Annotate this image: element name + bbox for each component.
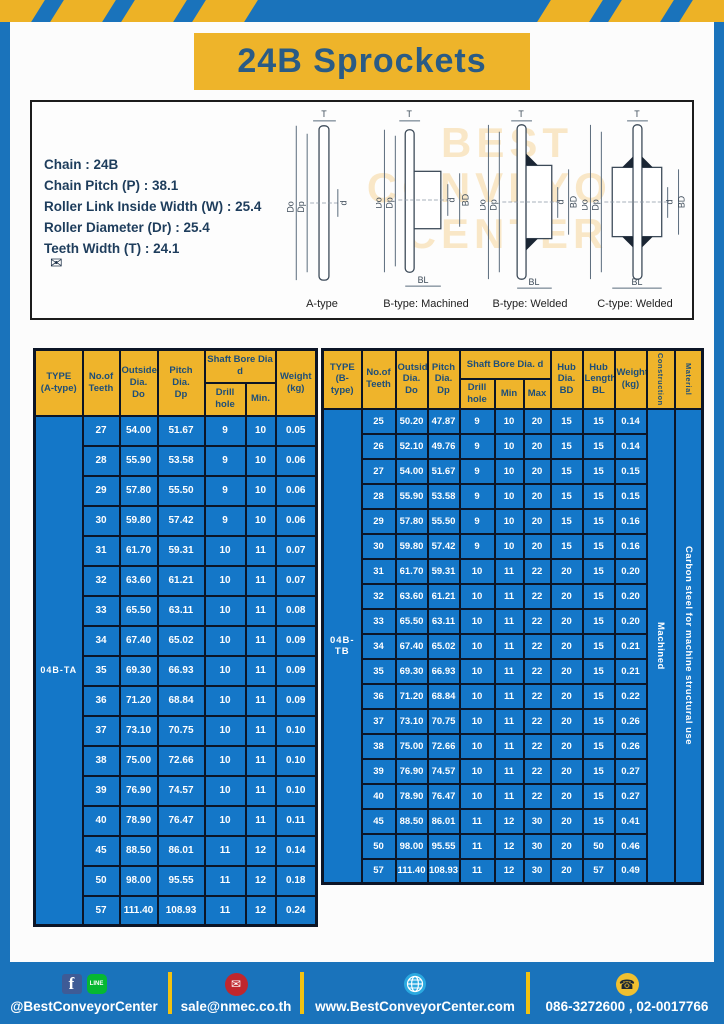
svg-text:Dp: Dp [384, 197, 394, 208]
cell: 15 [583, 609, 615, 634]
cell: 22 [524, 734, 551, 759]
cell: 65.02 [158, 626, 205, 656]
col-header-outside-dia: Outside Dia. Do [120, 350, 158, 416]
cell: 9 [460, 534, 495, 559]
cell: 0.26 [615, 734, 647, 759]
cell: 57 [583, 859, 615, 884]
col-header-pitch-dia: Pitch Dia. Dp [428, 350, 460, 409]
cell: 98.00 [120, 866, 158, 896]
cell: 34 [83, 626, 120, 656]
cell: 12 [246, 896, 276, 926]
cell: 0.16 [615, 534, 647, 559]
cell: 30 [524, 834, 551, 859]
cell: 9 [205, 416, 246, 446]
cell: 20 [551, 759, 583, 784]
cell: 63.11 [158, 596, 205, 626]
cell: 9 [205, 506, 246, 536]
spec-chain: Chain : 24B [44, 154, 261, 175]
cell: 20 [551, 609, 583, 634]
footer-phone: ☎ 086-3272600 , 02-0017766 [530, 973, 724, 1014]
c-type-welded-diagram: T Do Dp d BD [582, 108, 688, 296]
table-b-body: 04B-TB2550.2047.879102015150.14MachinedC… [323, 409, 703, 884]
cell: 12 [495, 859, 524, 884]
col-header-type-b: TYPE (B-type) [323, 350, 362, 409]
chain-specs: Chain : 24B Chain Pitch (P) : 38.1 Rolle… [44, 154, 261, 259]
cell: 33 [362, 609, 396, 634]
table-row: 3773.1070.7510112220150.26 [323, 709, 703, 734]
spec-roller-width: Roller Link Inside Width (W) : 25.4 [44, 196, 261, 217]
cell: 88.50 [120, 836, 158, 866]
cell: 11 [246, 776, 276, 806]
cell: 10 [495, 509, 524, 534]
phone-icon: ☎ [616, 973, 639, 996]
cell: 59.31 [158, 536, 205, 566]
cell: 12 [246, 836, 276, 866]
cell: 12 [495, 809, 524, 834]
cell: 57.80 [396, 509, 428, 534]
svg-text:Do: Do [286, 201, 295, 212]
cell: 74.57 [428, 759, 460, 784]
col-header-weight: Weight (kg) [615, 350, 647, 409]
cell: 0.20 [615, 559, 647, 584]
cell: 55.90 [120, 446, 158, 476]
footer-website: www.BestConveyorCenter.com [304, 972, 526, 1014]
cell: 11 [460, 809, 495, 834]
cell: 10 [495, 459, 524, 484]
cell: 22 [524, 609, 551, 634]
cell: 20 [551, 809, 583, 834]
cell: 11 [246, 536, 276, 566]
cell: 54.00 [120, 416, 158, 446]
cell: 74.57 [158, 776, 205, 806]
cell: 10 [495, 409, 524, 434]
cell: 22 [524, 759, 551, 784]
spec-roller-dia: Roller Diameter (Dr) : 25.4 [44, 217, 261, 238]
cell: 10 [205, 626, 246, 656]
svg-text:BL: BL [632, 277, 643, 287]
cell: 50.20 [396, 409, 428, 434]
table-row: 2855.9053.589102015150.15 [323, 484, 703, 509]
cell: 11 [495, 734, 524, 759]
cell: 0.11 [276, 806, 317, 836]
cell: 59.31 [428, 559, 460, 584]
cell: 20 [551, 784, 583, 809]
cell: 52.10 [396, 434, 428, 459]
cell: 11 [495, 659, 524, 684]
cell: 30 [362, 534, 396, 559]
cell: 0.21 [615, 634, 647, 659]
col-header-min: Min. [246, 383, 276, 416]
email-address: sale@nmec.co.th [181, 999, 292, 1014]
svg-text:BL: BL [418, 275, 429, 285]
cell: 10 [460, 684, 495, 709]
col-header-min: Min [495, 379, 524, 409]
cell: 65.02 [428, 634, 460, 659]
cell: 0.09 [276, 686, 317, 716]
cell: 28 [362, 484, 396, 509]
table-row: 3467.4065.0210112220150.21 [323, 634, 703, 659]
cell: 0.15 [615, 459, 647, 484]
cell: 15 [583, 534, 615, 559]
cell: 0.10 [276, 776, 317, 806]
col-header-outside-dia: Outside Dia. Do [396, 350, 428, 409]
svg-text:Do: Do [376, 197, 383, 208]
cell: 10 [246, 416, 276, 446]
cell: 11 [246, 566, 276, 596]
cell: 0.06 [276, 446, 317, 476]
website-url: www.BestConveyorCenter.com [315, 999, 515, 1014]
cell: 0.05 [276, 416, 317, 446]
cell: 10 [460, 559, 495, 584]
cell: 78.90 [396, 784, 428, 809]
cell: 10 [460, 609, 495, 634]
cell: 0.14 [615, 434, 647, 459]
cell: 63.11 [428, 609, 460, 634]
cell: 9 [205, 476, 246, 506]
cell: 0.08 [276, 596, 317, 626]
cell: 76.47 [428, 784, 460, 809]
cell: 29 [83, 476, 120, 506]
cell: 47.87 [428, 409, 460, 434]
cell: 10 [205, 776, 246, 806]
cell: 15 [551, 509, 583, 534]
cell: 0.07 [276, 536, 317, 566]
cell: 36 [362, 684, 396, 709]
cell: 10 [246, 476, 276, 506]
cell: 71.20 [120, 686, 158, 716]
social-handle: @BestConveyorCenter [10, 999, 157, 1014]
spec-panel: BEST CONVEYOR CENTER Chain : 24B Chain P… [30, 100, 694, 320]
b-type-welded-diagram: T Do Dp d BD BL [480, 108, 580, 296]
cell: 10 [205, 746, 246, 776]
cell: 11 [246, 656, 276, 686]
cell: 20 [551, 659, 583, 684]
cell: 22 [524, 784, 551, 809]
cell: 15 [583, 484, 615, 509]
cell: 15 [583, 784, 615, 809]
cell: 37 [83, 716, 120, 746]
table-b-wrapper: TYPE (B-type) No.of Teeth Outside Dia. D… [321, 348, 701, 885]
cell: 95.55 [428, 834, 460, 859]
cell: 10 [205, 566, 246, 596]
svg-text:T: T [321, 109, 327, 119]
col-header-hub-dia: Hub Dia. BD [551, 350, 583, 409]
cell: 11 [495, 784, 524, 809]
cell: 15 [583, 809, 615, 834]
spec-teeth-width: Teeth Width (T) : 24.1 [44, 238, 261, 259]
cell: 50 [362, 834, 396, 859]
figure-caption: B-type: Welded [492, 296, 567, 314]
cell: 55.50 [428, 509, 460, 534]
cell: 20 [551, 559, 583, 584]
cell: 11 [246, 746, 276, 776]
cell: 11 [205, 836, 246, 866]
cell: 32 [362, 584, 396, 609]
cell: 15 [583, 759, 615, 784]
cell: 0.09 [276, 656, 317, 686]
type-value-cell: 04B-TA [35, 416, 83, 926]
table-row: 2652.1049.769102015150.14 [323, 434, 703, 459]
cell: 11 [495, 584, 524, 609]
top-stripes-right [544, 0, 724, 22]
col-header-drill-hole: Drill hole [460, 379, 495, 409]
cell: 108.93 [428, 859, 460, 884]
table-row: 57111.40108.9311123020570.49 [323, 859, 703, 884]
cell: 37 [362, 709, 396, 734]
material-value-cell: Carbon steel for machine structural use [675, 409, 703, 884]
cell: 50 [583, 834, 615, 859]
b-type-table: TYPE (B-type) No.of Teeth Outside Dia. D… [321, 348, 704, 885]
cell: 20 [551, 734, 583, 759]
a-type-diagram: T Do Dp d [286, 108, 358, 296]
cell: 53.58 [428, 484, 460, 509]
table-row: 4588.5086.0111123020150.41 [323, 809, 703, 834]
cell: 15 [551, 484, 583, 509]
cell: 22 [524, 634, 551, 659]
cell: 39 [83, 776, 120, 806]
cell: 45 [83, 836, 120, 866]
table-row: 04B-TB2550.2047.879102015150.14MachinedC… [323, 409, 703, 434]
cell: 0.10 [276, 746, 317, 776]
cell: 51.67 [158, 416, 205, 446]
svg-text:Dp: Dp [590, 199, 600, 210]
type-value-cell: 04B-TB [323, 409, 362, 884]
cell: 22 [524, 684, 551, 709]
cell: 31 [362, 559, 396, 584]
cell: 0.20 [615, 584, 647, 609]
cell: 11 [460, 859, 495, 884]
cell: 63.60 [120, 566, 158, 596]
cell: 73.10 [120, 716, 158, 746]
col-header-teeth: No.of Teeth [83, 350, 120, 416]
cell: 0.27 [615, 784, 647, 809]
table-row: 3365.5063.1110112220150.20 [323, 609, 703, 634]
figure-caption: B-type: Machined [383, 296, 469, 314]
cell: 0.06 [276, 476, 317, 506]
cell: 67.40 [396, 634, 428, 659]
cell: 10 [205, 806, 246, 836]
cell: 15 [583, 434, 615, 459]
cell: 50 [83, 866, 120, 896]
cell: 15 [583, 659, 615, 684]
cell: 9 [205, 446, 246, 476]
cell: 57 [362, 859, 396, 884]
cell: 76.90 [396, 759, 428, 784]
cell: 10 [246, 506, 276, 536]
cell: 20 [524, 434, 551, 459]
svg-text:T: T [634, 109, 640, 119]
svg-text:d: d [665, 199, 675, 204]
col-header-max: Max [524, 379, 551, 409]
cell: 73.10 [396, 709, 428, 734]
cell: 20 [524, 509, 551, 534]
cell: 11 [205, 896, 246, 926]
cell: 69.30 [120, 656, 158, 686]
cell: 59.80 [396, 534, 428, 559]
col-header-shaft-bore: Shaft Bore Dia. d [460, 350, 551, 380]
cell: 68.84 [158, 686, 205, 716]
cell: 0.26 [615, 709, 647, 734]
cell: 45 [362, 809, 396, 834]
cell: 20 [551, 709, 583, 734]
cell: 0.07 [276, 566, 317, 596]
cell: 57 [83, 896, 120, 926]
cell: 27 [83, 416, 120, 446]
cell: 25 [362, 409, 396, 434]
table-row: 4078.9076.4710112220150.27 [323, 784, 703, 809]
cell: 61.70 [120, 536, 158, 566]
cell: 15 [583, 709, 615, 734]
cell: 15 [583, 459, 615, 484]
cell: 10 [460, 659, 495, 684]
a-type-table: TYPE (A-type) No.of Teeth Outside Dia. D… [33, 348, 318, 927]
svg-text:T: T [518, 109, 524, 119]
svg-text:BL: BL [529, 277, 540, 287]
cell: 111.40 [396, 859, 428, 884]
cell: 86.01 [428, 809, 460, 834]
cell: 70.75 [428, 709, 460, 734]
cell: 15 [551, 459, 583, 484]
cell: 11 [495, 684, 524, 709]
cell: 10 [460, 734, 495, 759]
cell: 40 [83, 806, 120, 836]
svg-text:d: d [556, 199, 566, 204]
cell: 36 [83, 686, 120, 716]
cell: 61.70 [396, 559, 428, 584]
footer-email: ✉ sale@nmec.co.th [172, 973, 300, 1014]
svg-text:d: d [447, 197, 457, 202]
cell: 22 [524, 584, 551, 609]
svg-text:BD: BD [461, 194, 471, 206]
cell: 10 [460, 759, 495, 784]
cell: 33 [83, 596, 120, 626]
cell: 20 [524, 459, 551, 484]
cell: 76.47 [158, 806, 205, 836]
cell: 0.21 [615, 659, 647, 684]
figure-c-type-welded: T Do Dp d BD [582, 106, 688, 314]
cell: 11 [246, 716, 276, 746]
page: 24B Sprockets BEST CONVEYOR CENTER Chain… [10, 22, 714, 962]
cell: 10 [246, 446, 276, 476]
cell: 55.50 [158, 476, 205, 506]
table-row: 3569.3066.9310112220150.21 [323, 659, 703, 684]
cell: 9 [460, 484, 495, 509]
cell: 10 [205, 596, 246, 626]
table-row: 5098.0095.5511123020500.46 [323, 834, 703, 859]
cell: 61.21 [158, 566, 205, 596]
cell: 0.15 [615, 484, 647, 509]
cell: 95.55 [158, 866, 205, 896]
cell: 31 [83, 536, 120, 566]
cell: 29 [362, 509, 396, 534]
table-row: 3671.2068.8410112220150.22 [323, 684, 703, 709]
cell: 20 [524, 534, 551, 559]
cell: 20 [551, 859, 583, 884]
cell: 9 [460, 459, 495, 484]
cell: 15 [551, 434, 583, 459]
cell: 20 [524, 484, 551, 509]
line-icon: LINE [87, 974, 107, 994]
cell: 10 [460, 584, 495, 609]
cell: 15 [551, 534, 583, 559]
cell: 71.20 [396, 684, 428, 709]
cell: 27 [362, 459, 396, 484]
figure-b-type-welded: T Do Dp d BD BL [478, 106, 582, 314]
figure-b-type-machined: T Do Dp d BD BL B-type: Machined [374, 106, 478, 314]
svg-text:Dp: Dp [488, 199, 498, 210]
cell: 20 [551, 584, 583, 609]
cell: 0.09 [276, 626, 317, 656]
top-stripe-band [0, 0, 724, 22]
cell: 0.24 [276, 896, 317, 926]
cell: 20 [551, 634, 583, 659]
col-header-hub-length: Hub Length BL [583, 350, 615, 409]
table-row: 3263.6061.2110112220150.20 [323, 584, 703, 609]
cell: 69.30 [396, 659, 428, 684]
cell: 12 [495, 834, 524, 859]
col-header-pitch-dia: Pitch Dia. Dp [158, 350, 205, 416]
cell: 0.22 [615, 684, 647, 709]
table-a-wrapper: TYPE (A-type) No.of Teeth Outside Dia. D… [33, 348, 318, 927]
cell: 57.42 [428, 534, 460, 559]
cell: 111.40 [120, 896, 158, 926]
cell: 38 [83, 746, 120, 776]
cell: 75.00 [120, 746, 158, 776]
col-header-type-a: TYPE (A-type) [35, 350, 83, 416]
cell: 10 [205, 536, 246, 566]
col-header-shaft-bore: Shaft Bore Dia d [205, 350, 276, 383]
cell: 0.14 [276, 836, 317, 866]
cell: 55.90 [396, 484, 428, 509]
cell: 35 [362, 659, 396, 684]
cell: 9 [460, 409, 495, 434]
cell: 22 [524, 559, 551, 584]
top-stripes-left [0, 0, 251, 22]
cell: 11 [460, 834, 495, 859]
cell: 57.42 [158, 506, 205, 536]
cell: 35 [83, 656, 120, 686]
cell: 53.58 [158, 446, 205, 476]
cell: 10 [495, 434, 524, 459]
mail-icon: ✉ [225, 973, 248, 996]
cell: 15 [583, 684, 615, 709]
cell: 10 [205, 686, 246, 716]
cell: 10 [205, 716, 246, 746]
cell: 0.49 [615, 859, 647, 884]
cell: 9 [460, 509, 495, 534]
svg-text:BD: BD [676, 196, 686, 208]
cell: 30 [83, 506, 120, 536]
cell: 39 [362, 759, 396, 784]
cell: 66.93 [158, 656, 205, 686]
phone-numbers: 086-3272600 , 02-0017766 [546, 999, 709, 1014]
cell: 32 [83, 566, 120, 596]
cell: 108.93 [158, 896, 205, 926]
cell: 65.50 [396, 609, 428, 634]
cell: 40 [362, 784, 396, 809]
cell: 11 [495, 634, 524, 659]
col-header-weight: Weight (kg) [276, 350, 317, 416]
cell: 20 [524, 409, 551, 434]
col-header-drill-hole: Drill hole [205, 383, 246, 416]
cell: 65.50 [120, 596, 158, 626]
cell: 0.20 [615, 609, 647, 634]
globe-icon [403, 972, 427, 996]
cell: 61.21 [428, 584, 460, 609]
figure-caption: C-type: Welded [597, 296, 673, 314]
b-type-machined-diagram: T Do Dp d BD BL [376, 108, 476, 296]
cell: 11 [246, 626, 276, 656]
